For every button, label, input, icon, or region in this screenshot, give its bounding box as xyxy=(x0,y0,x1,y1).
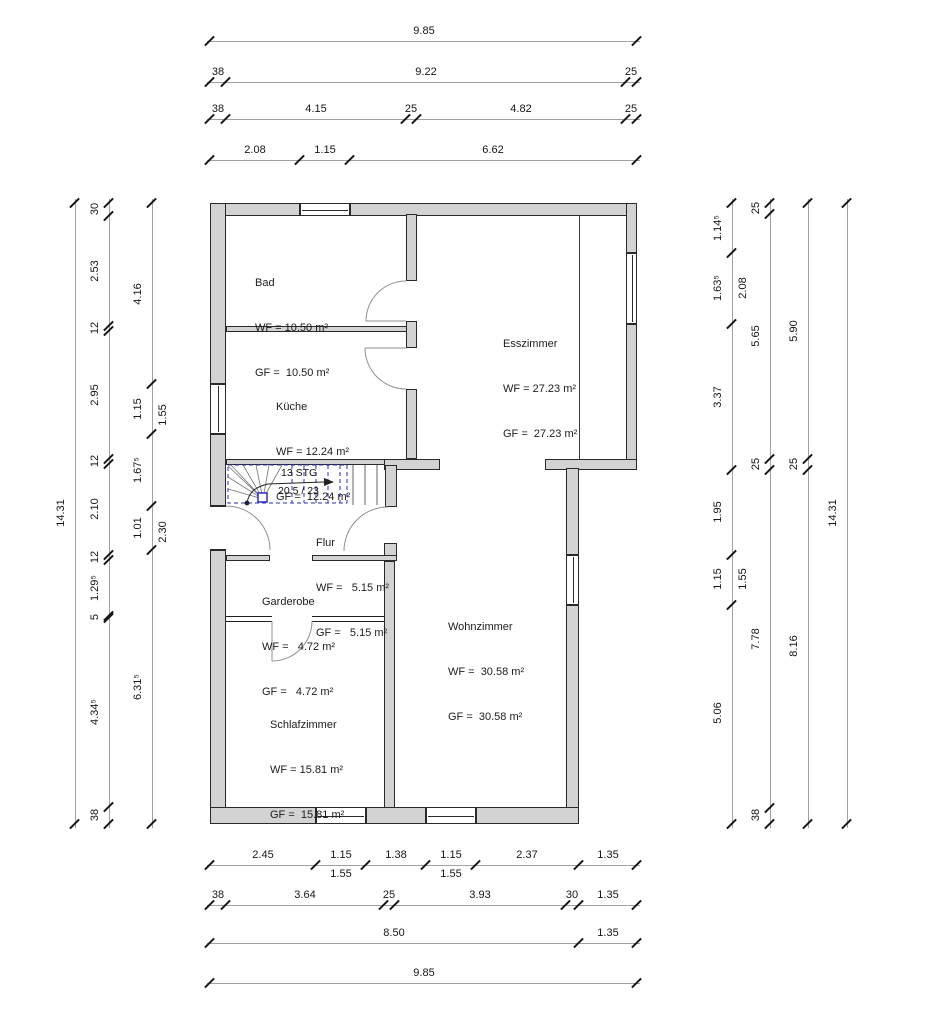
dim-label: 38 xyxy=(188,889,248,903)
entrance-door-opening xyxy=(210,506,226,550)
dim-label: 8.16 xyxy=(788,616,802,676)
room-gf: GF = 15.81 m² xyxy=(270,808,344,823)
dim-label: 2.37 xyxy=(497,849,557,863)
dim-label: 2.45 xyxy=(233,849,293,863)
dim-line xyxy=(732,199,733,828)
wall-stair-east xyxy=(385,465,397,507)
room-name: Flur xyxy=(316,536,389,551)
wall-wohn-east-upper xyxy=(566,468,579,555)
dim-label: 4.82 xyxy=(491,103,551,117)
dim-label: 3.93 xyxy=(450,889,510,903)
wall-top-right xyxy=(350,203,637,216)
wall-bottom-3 xyxy=(476,807,579,824)
room-name: Schlafzimmer xyxy=(270,718,344,733)
dim-label: 1.35 xyxy=(578,849,638,863)
room-gf: GF = 12.24 m² xyxy=(276,490,350,505)
room-wf: WF = 10.50 m² xyxy=(255,321,329,336)
room-name: Küche xyxy=(276,400,350,415)
room-wf: WF = 12.24 m² xyxy=(276,445,350,460)
dim-label: 1.14⁵ xyxy=(712,198,726,258)
window-wohnzimmer-right xyxy=(566,555,579,605)
dim-label: 4.16 xyxy=(132,264,146,324)
dim-label: 7.78 xyxy=(750,609,764,669)
room-label-esszimmer: Esszimmer WF = 27.23 m² GF = 27.23 m² xyxy=(503,307,577,472)
stair-start-marker xyxy=(258,493,267,502)
dim-label: 1.01 xyxy=(132,498,146,558)
dim-label: 14.31 xyxy=(55,483,69,543)
dim-label: 25 xyxy=(601,103,661,117)
dim-label: 25 xyxy=(601,66,661,80)
dim-sublabel: 2.08 xyxy=(737,258,751,318)
dim-line xyxy=(207,41,640,42)
dim-sublabel: 1.55 xyxy=(157,385,171,445)
dim-line xyxy=(207,82,640,83)
dim-label: 9.22 xyxy=(396,66,456,80)
stair-walkline-dot xyxy=(245,501,250,506)
dim-label: 38 xyxy=(89,785,103,845)
window-kueche-left xyxy=(210,384,226,434)
room-name: Wohnzimmer xyxy=(448,620,524,635)
dim-line xyxy=(152,199,153,828)
dim-label: 1.15 xyxy=(311,849,371,863)
dim-label: 3.37 xyxy=(712,367,726,427)
dim-label: 25 xyxy=(788,434,802,494)
wall-right-upper2 xyxy=(626,324,637,470)
window-bad-top xyxy=(300,203,350,216)
dim-label: 1.67⁵ xyxy=(132,440,146,500)
dim-label: 9.85 xyxy=(394,25,454,39)
dim-label: 38 xyxy=(188,66,248,80)
dim-label: 1.38 xyxy=(366,849,426,863)
door-arc-entrance xyxy=(226,506,270,550)
dim-label: 38 xyxy=(188,103,248,117)
window-wohnzimmer-bottom xyxy=(426,807,476,824)
dim-label: 12 xyxy=(89,298,103,358)
dim-line xyxy=(770,199,771,828)
room-wf: WF = 15.81 m² xyxy=(270,763,344,778)
room-name: Esszimmer xyxy=(503,337,577,352)
dim-line xyxy=(808,199,809,828)
dim-label: 1.63⁵ xyxy=(712,258,726,318)
room-name: Bad xyxy=(255,276,329,291)
room-gf: GF = 30.58 m² xyxy=(448,710,524,725)
dim-label: 1.95 xyxy=(712,482,726,542)
dim-label: 8.50 xyxy=(364,927,424,941)
dim-line xyxy=(207,983,640,984)
wall-right-upper xyxy=(626,203,637,253)
dim-label: 3.64 xyxy=(275,889,335,903)
dim-label: 5.90 xyxy=(788,301,802,361)
dim-label: 2.53 xyxy=(89,241,103,301)
wall-bad-east-3 xyxy=(406,389,417,459)
dim-label: 25 xyxy=(359,889,419,903)
wall-bad-east-2 xyxy=(406,321,417,348)
room-wf: WF = 4.72 m² xyxy=(262,640,335,655)
dim-label: 9.85 xyxy=(394,967,454,981)
dim-label: 1.15 xyxy=(295,144,355,158)
dim-label: 1.15 xyxy=(712,549,726,609)
wall-bottom-2 xyxy=(366,807,426,824)
wall-left-mid xyxy=(210,434,226,506)
dim-label: 1.15 xyxy=(132,379,146,439)
dim-label: 1.15 xyxy=(421,849,481,863)
room-label-schlafzimmer: Schlafzimmer WF = 15.81 m² GF = 15.81 m² xyxy=(270,688,344,853)
stair-treads-solid xyxy=(353,465,377,505)
dim-label: 5.65 xyxy=(750,306,764,366)
floor-plan-canvas: 13 STG 20.5 / 23 Bad WF = 10.50 m² GF = … xyxy=(0,0,936,1032)
dim-line xyxy=(207,160,640,161)
door-arc-kueche xyxy=(365,348,406,389)
dim-line xyxy=(207,119,640,120)
dim-label: 2.95 xyxy=(89,365,103,425)
room-wf: WF = 27.23 m² xyxy=(503,382,577,397)
dim-label: 5 xyxy=(89,587,103,647)
room-gf: GF = 27.23 m² xyxy=(503,427,577,442)
dim-label: 5.06 xyxy=(712,683,726,743)
dim-label: 6.31⁵ xyxy=(132,657,146,717)
dim-sublabel: 1.55 xyxy=(737,549,751,609)
wall-bad-east-1 xyxy=(406,214,417,281)
dim-label: 1.35 xyxy=(578,889,638,903)
dim-label: 14.31 xyxy=(827,483,841,543)
dim-sublabel: 2.30 xyxy=(157,502,171,562)
room-label-wohnzimmer: Wohnzimmer WF = 30.58 m² GF = 30.58 m² xyxy=(448,590,524,755)
room-name: Garderobe xyxy=(262,595,335,610)
room-wf: WF = 30.58 m² xyxy=(448,665,524,680)
window-esszimmer-right xyxy=(626,253,637,324)
dim-label: 4.15 xyxy=(286,103,346,117)
door-arc-bad xyxy=(366,281,406,321)
dim-sublabel: 1.55 xyxy=(311,868,371,882)
dim-label: 1.35 xyxy=(578,927,638,941)
dim-label: 2.08 xyxy=(225,144,285,158)
wall-wohn-east-lower xyxy=(566,605,579,824)
wall-left-lower xyxy=(210,550,226,824)
dim-label: 6.62 xyxy=(463,144,523,158)
dim-label: 30 xyxy=(89,179,103,239)
dim-label: 25 xyxy=(750,178,764,238)
dim-line xyxy=(75,199,76,828)
dim-label: 25 xyxy=(750,434,764,494)
stair-winder-lines xyxy=(228,465,282,499)
dim-label: 4.34⁵ xyxy=(89,682,103,742)
dim-line xyxy=(847,199,848,828)
wall-garderobe-north-1 xyxy=(226,555,270,561)
wall-left-upper xyxy=(210,203,226,384)
dim-label: 25 xyxy=(381,103,441,117)
dim-label: 38 xyxy=(750,785,764,845)
dim-sublabel: 1.55 xyxy=(421,868,481,882)
dim-line xyxy=(109,199,110,828)
